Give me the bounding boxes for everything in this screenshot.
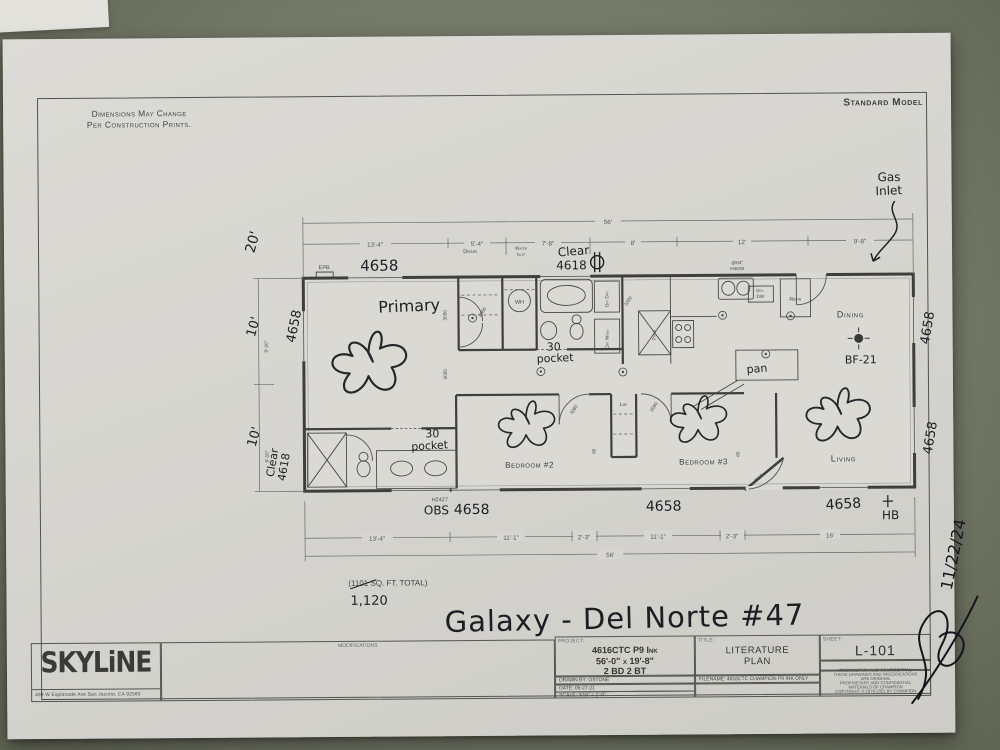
hw-gas-2: Inlet xyxy=(875,183,902,198)
hw-pan: pan xyxy=(746,362,768,377)
company-box: SKYLiNE 499 W Esplanade Ave San Jacinto,… xyxy=(31,642,161,702)
hw-window-bed2: 4658 xyxy=(454,502,490,518)
dim-bot-s1: 13'-4" xyxy=(369,536,385,543)
hw-window-top: 4658 xyxy=(360,257,398,275)
underlying-paper-corner xyxy=(0,0,109,33)
dim-top-s4: 8' xyxy=(631,240,636,247)
modifications-box: MODIFICATIONS xyxy=(161,639,555,701)
dim-bot-s2: 11'-1" xyxy=(503,535,519,542)
pantry-label: Pntry xyxy=(652,329,657,340)
hw-sqft-revised: 1,120 xyxy=(350,594,387,609)
drain-label: Drain xyxy=(463,249,477,255)
water-inlet-label-2: Inlet xyxy=(517,252,526,257)
room-label-living: Living xyxy=(831,453,857,463)
sqft-printed: (1101 SQ. FT. TOTAL) xyxy=(348,578,427,588)
company-address: 499 W Esplanade Ave San Jacinto, CA 9258… xyxy=(32,688,160,701)
hw-primary-label: Primary xyxy=(378,295,441,317)
hw-clear-left: Clear 4618 xyxy=(263,447,293,482)
refrigerator-label: Refr xyxy=(789,297,801,303)
hw-bf21: BF-21 xyxy=(845,353,877,366)
room-label-dining: Dining xyxy=(837,309,864,319)
dim-bot-s3: 2'-3" xyxy=(578,534,591,541)
hose-bib-mark xyxy=(883,495,893,507)
hw-gas-1: Gas xyxy=(878,170,901,184)
hw-dim-10a: 10' xyxy=(244,315,264,338)
hw-window-living: 4658 xyxy=(825,495,862,513)
dim-left-p1: 9'-10" xyxy=(264,340,269,352)
dim-bot-s5: 2'-3" xyxy=(726,533,739,540)
hw-pocket-bot-2: pocket xyxy=(411,438,449,453)
hw-clear-top-1: Clear xyxy=(557,243,589,259)
document-paper: Dimensions May Change Per Construction P… xyxy=(3,33,956,740)
signature-area: 11/22/24 xyxy=(898,430,995,711)
project-label: PROJECT: xyxy=(558,638,585,644)
hw-window-bed3: 4658 xyxy=(646,499,682,515)
sheet-title-box: TITLE: LITERATURE PLAN xyxy=(695,635,820,676)
project-box: PROJECT: 4616CTC P9 Ink 56'-0" x 19'-8" … xyxy=(555,635,695,676)
title-label: TITLE: xyxy=(698,637,715,643)
corner-note-line2: Per Construction Prints. xyxy=(59,119,219,131)
dim-bot-s6: 16' xyxy=(826,533,834,540)
epb-label: EPB xyxy=(319,265,330,271)
hw-pocket-top-2: pocket xyxy=(536,351,574,366)
water-heater-label: WH xyxy=(515,300,524,306)
opt-dw-label-1: Opt. xyxy=(756,288,765,293)
opt-wash-label: Opt Wash xyxy=(605,329,610,348)
opt-dw-label-2: DW xyxy=(756,294,764,299)
empty-row xyxy=(695,683,820,698)
dim-bot-overall: 56' xyxy=(606,552,614,559)
dim-top-s5: 12' xyxy=(738,239,746,246)
hw-dim-20: 20' xyxy=(243,229,264,254)
sheet-title-2: PLAN xyxy=(696,656,819,668)
room-label-bed3: Bedroom #3 xyxy=(679,457,728,466)
hw-obs: OBS xyxy=(424,503,449,517)
sheet-title-1: LITERATURE xyxy=(696,645,819,657)
hw-window-dining-right: 4658 xyxy=(918,310,938,345)
hw-hose-bib: HB xyxy=(882,508,899,522)
dim-top-s3: 7'-8" xyxy=(542,240,555,247)
dim-bot-s4: 11'-1" xyxy=(650,534,666,541)
dim-top-overall: 56' xyxy=(604,219,612,226)
signature-scribble xyxy=(911,597,978,703)
hw-clear-top-2: 4618 xyxy=(556,258,587,272)
sheet-label: SHEET: xyxy=(823,636,842,642)
dim-top-s2: 5'-4" xyxy=(471,241,484,248)
sink-model-label: H4639 xyxy=(730,266,744,271)
hw-signature-date: 11/22/24 xyxy=(937,517,970,591)
dim-top-s6: 9'-8" xyxy=(854,238,867,245)
clear-window-symbol xyxy=(591,252,604,272)
gas-inlet-arrow xyxy=(871,201,898,261)
title-block: SKYLiNE 499 W Esplanade Ave San Jacinto,… xyxy=(31,634,931,702)
door-size-hall-a: 3050 xyxy=(442,310,447,321)
closet-width-bed3: 60 xyxy=(735,451,740,457)
door-size-hall-b: 3050 xyxy=(443,369,448,380)
scale-row: SCALE: 3/16" = 1'-0" xyxy=(555,690,695,698)
company-logo: SKYLiNE xyxy=(32,645,160,679)
corner-note: Dimensions May Change Per Construction P… xyxy=(59,108,219,131)
dim-top-s1: 13'-4" xyxy=(367,242,383,249)
opt-dry-label: Opt Dry xyxy=(604,291,609,307)
water-inlet-label-1: Water xyxy=(515,246,528,251)
closet-width-bed2: 60 xyxy=(591,448,596,454)
standard-model-label: Standard Model xyxy=(763,97,923,109)
sink-height-label: @84" xyxy=(731,260,743,265)
floor-plan-drawing: 56' 13'-4" 5'-4" 7'-8" 8' 12' 9'-8" Drai… xyxy=(239,157,942,622)
modifications-label: MODIFICATIONS xyxy=(162,641,554,650)
room-label-lin: Lin xyxy=(620,402,627,408)
hw-dim-10b: 10' xyxy=(245,425,265,448)
room-label-bed2: Bedroom #2 xyxy=(505,460,554,469)
